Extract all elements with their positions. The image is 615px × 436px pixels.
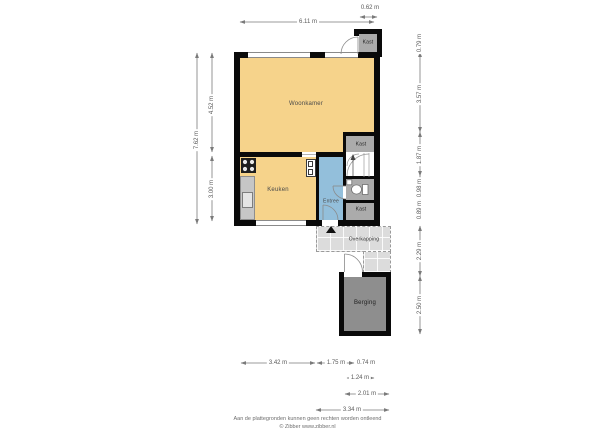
room-label-kast-mid: Kast xyxy=(356,143,367,148)
room-wc xyxy=(346,179,374,200)
dim-right-2: 1.87 m xyxy=(417,144,423,166)
dim-right-0: 0.79 m xyxy=(417,32,423,54)
sink-icon xyxy=(242,192,253,208)
overkapping-area-right xyxy=(363,251,391,273)
floorplan-canvas: Woonkamer Keuken Entree Kast Kast Kast O… xyxy=(0,0,615,436)
wall-entree-left xyxy=(316,157,319,220)
wall-kast-mid-top xyxy=(343,132,374,136)
cabinet-detail-top xyxy=(308,161,313,167)
window-keuken xyxy=(256,220,306,226)
footer-disclaimer: Aan de plattegronden kunnen geen rechten… xyxy=(0,416,615,431)
room-label-kast-bottom: Kast xyxy=(356,208,367,213)
dim-bottom-row4: 3.34 m xyxy=(341,407,363,413)
room-label-overkapping: Overkapping xyxy=(349,238,380,243)
dim-bottom-row3: 2.01 m xyxy=(356,391,378,397)
wall-divider-left xyxy=(240,152,302,157)
entrance-marker-icon xyxy=(326,226,336,233)
window-top-right xyxy=(325,52,358,58)
wall-wc-bottom xyxy=(343,200,374,203)
footer-line1: Aan de plattegronden kunnen geen rechten… xyxy=(0,416,615,424)
door-arc xyxy=(345,254,363,272)
stove-icon xyxy=(241,158,256,173)
opening-woonkamer-entree xyxy=(302,154,316,155)
wall-wc-top xyxy=(343,176,374,179)
dim-left-upper: 4.52 m xyxy=(209,94,215,116)
footer-line2: © Zibber www.zibber.nl xyxy=(0,424,615,432)
dim-right-1: 3.57 m xyxy=(417,83,423,105)
room-entree xyxy=(319,157,343,220)
room-label-woonkamer: Woonkamer xyxy=(289,101,323,107)
room-label-kast-top: Kast xyxy=(363,41,374,46)
window-top-left xyxy=(248,52,310,58)
room-label-berging: Berging xyxy=(354,300,376,306)
dim-left-lower: 3.00 m xyxy=(209,178,215,200)
cabinet-detail-bottom xyxy=(308,169,313,175)
room-label-entree: Entree xyxy=(323,200,339,205)
room-label-keuken: Keuken xyxy=(267,187,289,193)
dim-right-5: 2.29 m xyxy=(417,240,423,262)
berging-door-gap xyxy=(344,272,362,277)
wall-right xyxy=(374,52,380,226)
dim-right-4: 0.89 m xyxy=(417,199,423,221)
dim-top-width: 6.11 m xyxy=(297,19,319,25)
dim-right-3: 0.98 m xyxy=(417,177,423,199)
dim-right-6: 2.50 m xyxy=(417,294,423,316)
dim-bottom-kast: 0.74 m xyxy=(355,360,377,366)
stairs-area xyxy=(346,152,374,178)
dim-bottom-row2: 1.24 m xyxy=(349,375,371,381)
dim-left-total: 7.62 m xyxy=(194,129,200,151)
dim-bottom-entree: 1.75 m xyxy=(325,360,347,366)
wall-divider-right xyxy=(316,152,346,157)
dim-top-kast: 0.62 m xyxy=(359,5,381,11)
dim-bottom-keuken: 3.42 m xyxy=(267,360,289,366)
kast-top-door-gap xyxy=(354,36,359,53)
